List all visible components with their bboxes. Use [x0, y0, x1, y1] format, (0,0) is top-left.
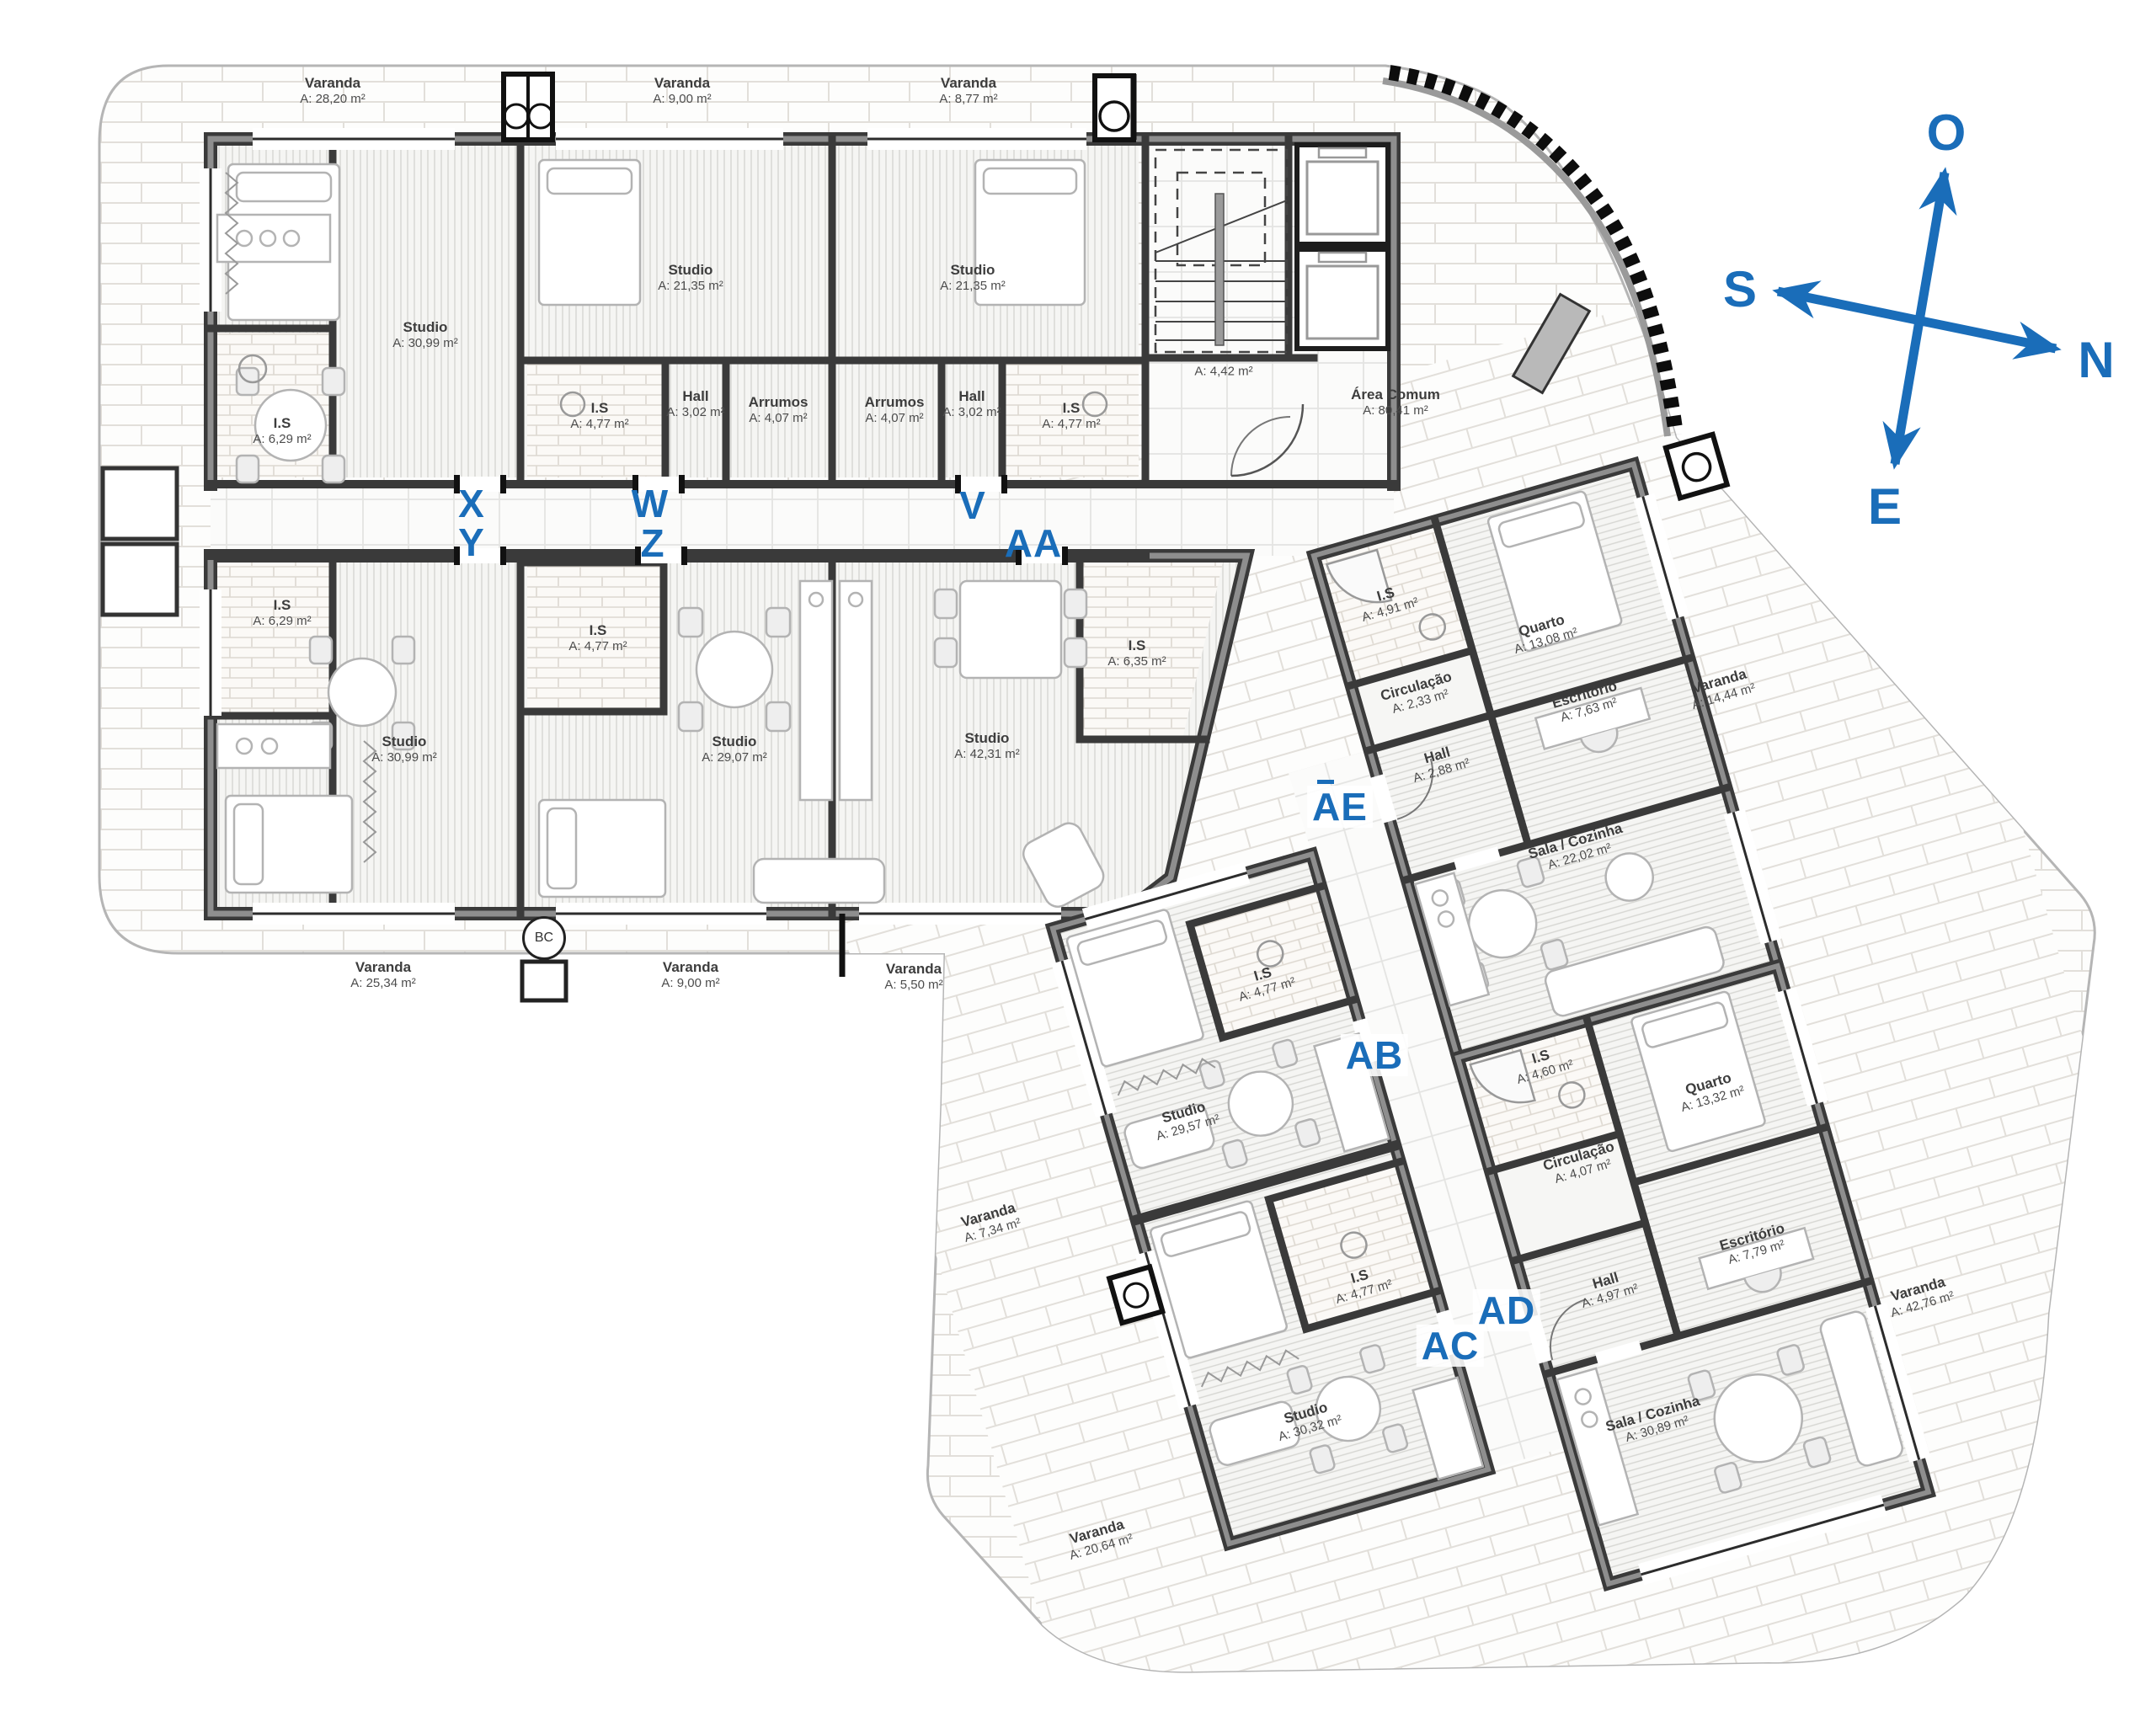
- bc-badge: BC: [522, 916, 566, 960]
- label-is-635: I.SA: 6,35 m²: [1107, 637, 1166, 670]
- unit-marker-y: Y: [458, 523, 485, 562]
- label-studio-2135-right: StudioA: 21,35 m²: [940, 261, 1006, 295]
- label-area-comum: Área ComumA: 80,41 m²: [1351, 386, 1440, 419]
- unit-marker-ae: AE: [1307, 786, 1373, 828]
- label-varanda-900-bottom: VarandaA: 9,00 m²: [661, 958, 719, 992]
- label-studio-4231: StudioA: 42,31 m²: [954, 729, 1020, 763]
- label-is-477-top-left: I.SA: 4,77 m²: [570, 399, 628, 433]
- label-studio-3099-bottom: StudioA: 30,99 m²: [371, 733, 437, 766]
- label-varanda-900-top: VarandaA: 9,00 m²: [653, 74, 711, 108]
- unit-marker-ab: AB: [1341, 1034, 1408, 1076]
- label-hall-302-left: HallA: 3,02 m²: [666, 387, 724, 421]
- floorplan-drawing: [0, 0, 2156, 1717]
- label-studio-3099-top: StudioA: 30,99 m²: [392, 318, 458, 352]
- unit-marker-ad: AD: [1473, 1289, 1540, 1331]
- compass-icon: [1778, 173, 2056, 464]
- label-is-629-top: I.SA: 6,29 m²: [253, 414, 311, 448]
- label-studio-2907: StudioA: 29,07 m²: [702, 733, 767, 766]
- unit-marker-w: W: [632, 484, 669, 523]
- label-stair-442: A: 4,42 m²: [1194, 365, 1252, 381]
- label-is-629-bottom: I.SA: 6,29 m²: [253, 596, 311, 630]
- marker-ae-tick: [1317, 780, 1334, 784]
- compass-south-label: S: [1723, 264, 1757, 315]
- label-varanda-877: VarandaA: 8,77 m²: [939, 74, 997, 108]
- label-arrumos-left: ArrumosA: 4,07 m²: [749, 393, 808, 427]
- label-studio-2135-left: StudioA: 21,35 m²: [658, 261, 723, 295]
- unit-marker-z: Z: [640, 524, 664, 563]
- label-arrumos-right: ArrumosA: 4,07 m²: [865, 393, 925, 427]
- label-is-477-row2: I.SA: 4,77 m²: [568, 621, 627, 655]
- unit-marker-x: X: [458, 484, 485, 523]
- compass-west-label: O: [1927, 108, 1967, 158]
- unit-marker-aa: AA: [1005, 524, 1062, 563]
- label-varanda-2534: VarandaA: 25,34 m²: [350, 958, 416, 992]
- floorplan-page: VarandaA: 28,20 m² VarandaA: 9,00 m² Var…: [0, 0, 2156, 1717]
- label-is-477-top-right: I.SA: 4,77 m²: [1042, 399, 1100, 433]
- unit-marker-v: V: [959, 486, 986, 525]
- label-varanda-550: VarandaA: 5,50 m²: [884, 960, 942, 994]
- compass-north-label: N: [2078, 335, 2114, 386]
- label-varanda-2820: VarandaA: 28,20 m²: [300, 74, 366, 108]
- label-hall-302-right: HallA: 3,02 m²: [942, 387, 1001, 421]
- compass-east-label: E: [1868, 482, 1902, 532]
